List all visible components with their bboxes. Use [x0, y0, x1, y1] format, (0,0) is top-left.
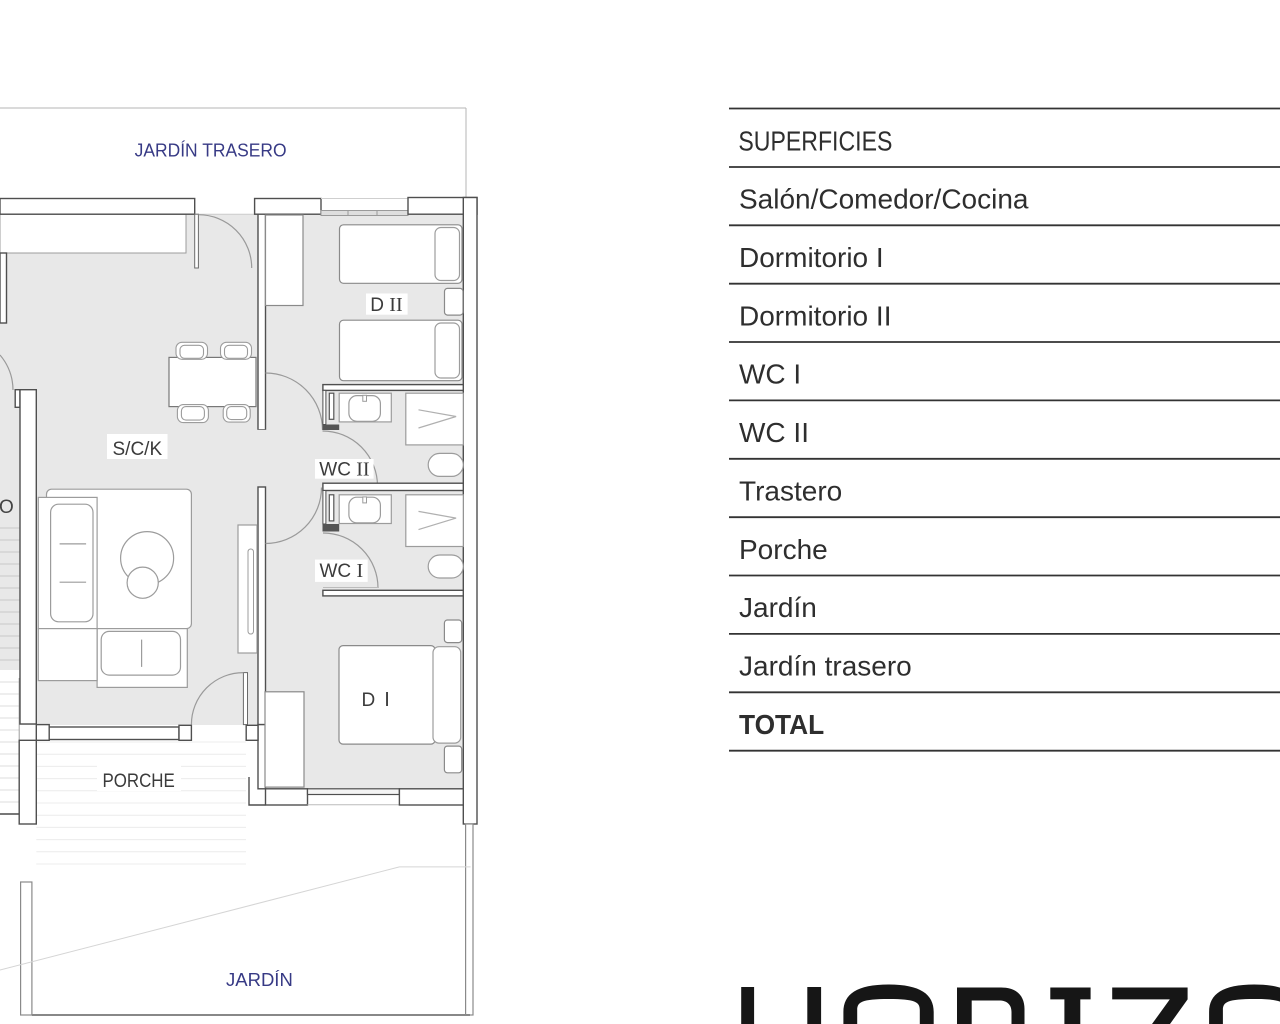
- svg-text:I: I: [384, 689, 390, 711]
- svg-text:D: D: [362, 690, 376, 711]
- svg-text:WC I: WC I: [320, 560, 364, 582]
- svg-text:Dormitorio I: Dormitorio I: [739, 242, 884, 273]
- svg-text:WC I: WC I: [739, 359, 801, 390]
- svg-text:O: O: [0, 497, 14, 518]
- svg-text:D II: D II: [370, 294, 402, 316]
- svg-text:SUPERFICIES: SUPERFICIES: [738, 126, 892, 157]
- svg-text:Salón/Comedor/Cocina: Salón/Comedor/Cocina: [739, 184, 1029, 215]
- svg-text:TOTAL: TOTAL: [739, 708, 824, 740]
- svg-text:JARDÍN TRASERO: JARDÍN TRASERO: [135, 140, 287, 160]
- svg-text:Porche: Porche: [739, 534, 828, 565]
- svg-text:Trastero: Trastero: [739, 476, 842, 507]
- svg-text:JARDÍN: JARDÍN: [226, 969, 293, 990]
- svg-text:Jardín trasero: Jardín trasero: [739, 651, 912, 682]
- svg-text:WC II: WC II: [319, 459, 369, 481]
- svg-text:PORCHE: PORCHE: [103, 770, 175, 791]
- svg-text:Jardín: Jardín: [739, 592, 817, 623]
- svg-text:Dormitorio II: Dormitorio II: [739, 300, 891, 331]
- svg-text:S/C/K: S/C/K: [113, 439, 163, 460]
- svg-text:WC II: WC II: [739, 417, 809, 448]
